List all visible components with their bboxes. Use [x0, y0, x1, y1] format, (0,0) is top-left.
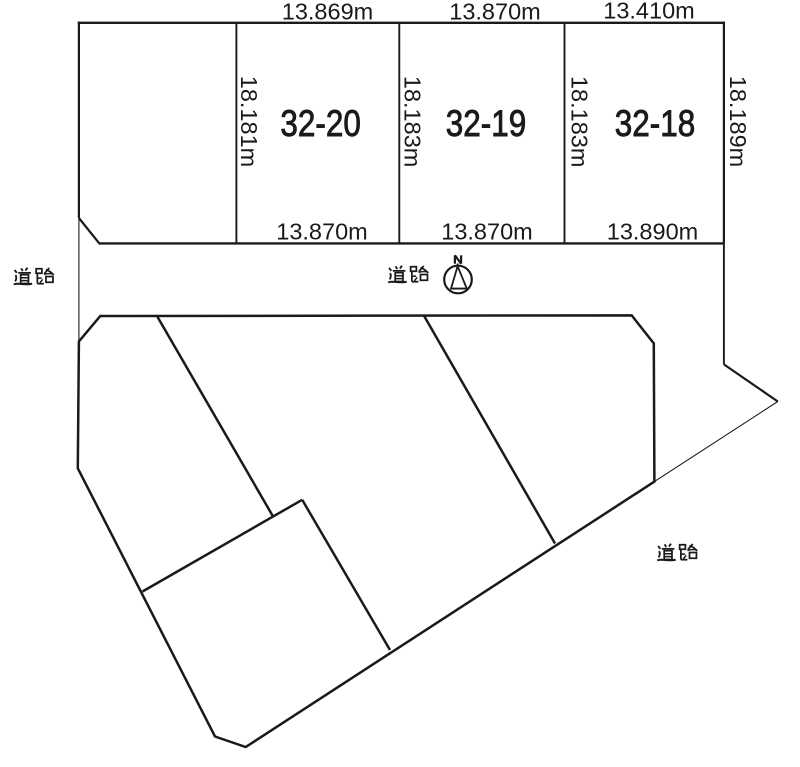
svg-text:32-18: 32-18	[615, 104, 695, 145]
svg-text:18.183m: 18.183m	[399, 76, 425, 167]
svg-text:13.870m: 13.870m	[276, 219, 367, 245]
svg-text:13.890m: 13.890m	[607, 219, 698, 245]
svg-text:18.181m: 18.181m	[236, 76, 262, 167]
svg-text:13.870m: 13.870m	[441, 219, 532, 245]
svg-text:13.869m: 13.869m	[282, 0, 373, 25]
svg-text:13.410m: 13.410m	[603, 0, 694, 24]
svg-text:18.183m: 18.183m	[567, 76, 593, 167]
svg-text:18.189m: 18.189m	[725, 76, 751, 167]
svg-text:32-20: 32-20	[280, 104, 360, 145]
svg-text:32-19: 32-19	[446, 104, 526, 145]
svg-text:13.870m: 13.870m	[449, 0, 540, 25]
